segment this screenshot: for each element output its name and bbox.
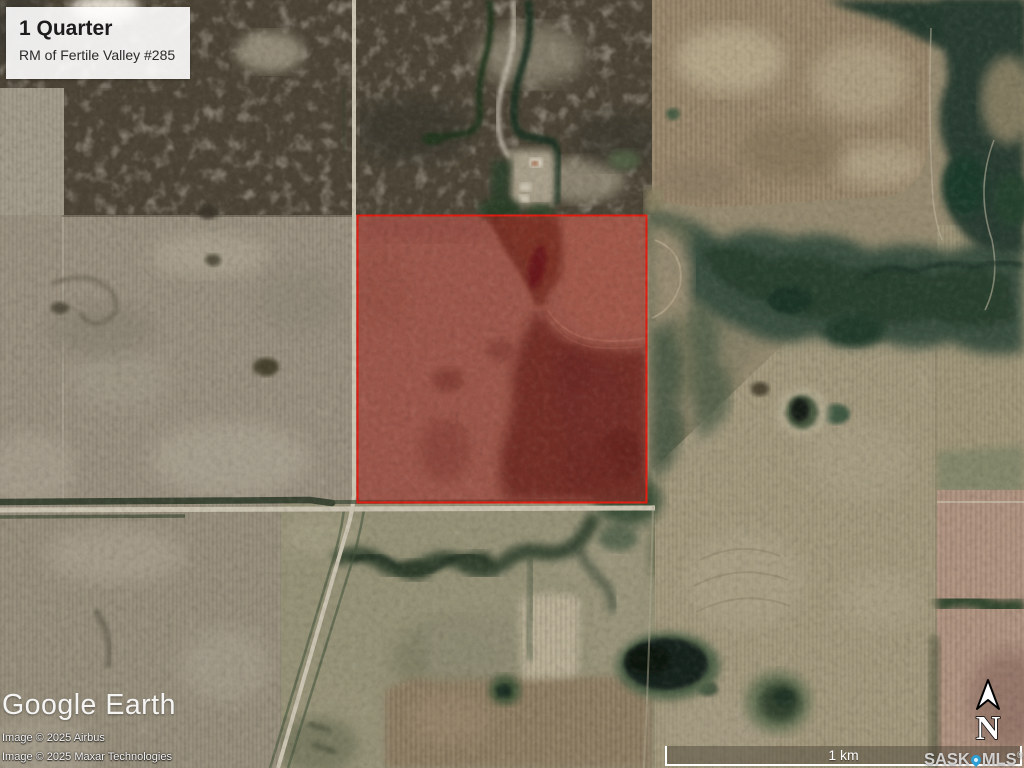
svg-text:N: N — [976, 710, 1001, 747]
